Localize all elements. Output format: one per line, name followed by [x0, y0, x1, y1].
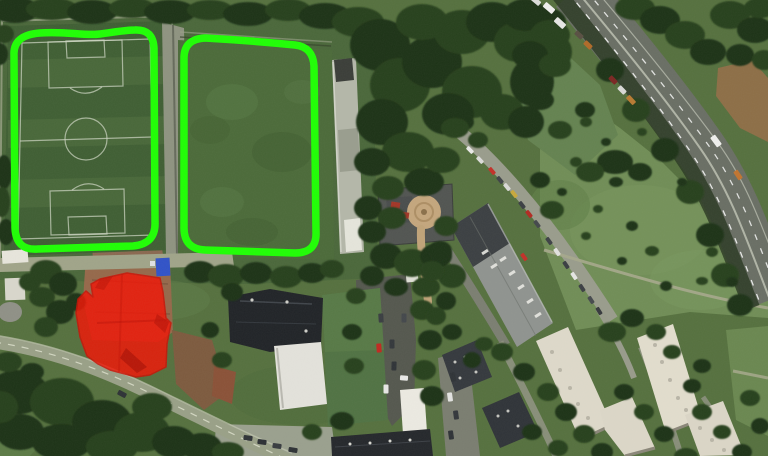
- photo-grain-overlay: [0, 0, 768, 456]
- satellite-map-view: [0, 0, 768, 456]
- aerial-photo-canvas: [0, 0, 768, 456]
